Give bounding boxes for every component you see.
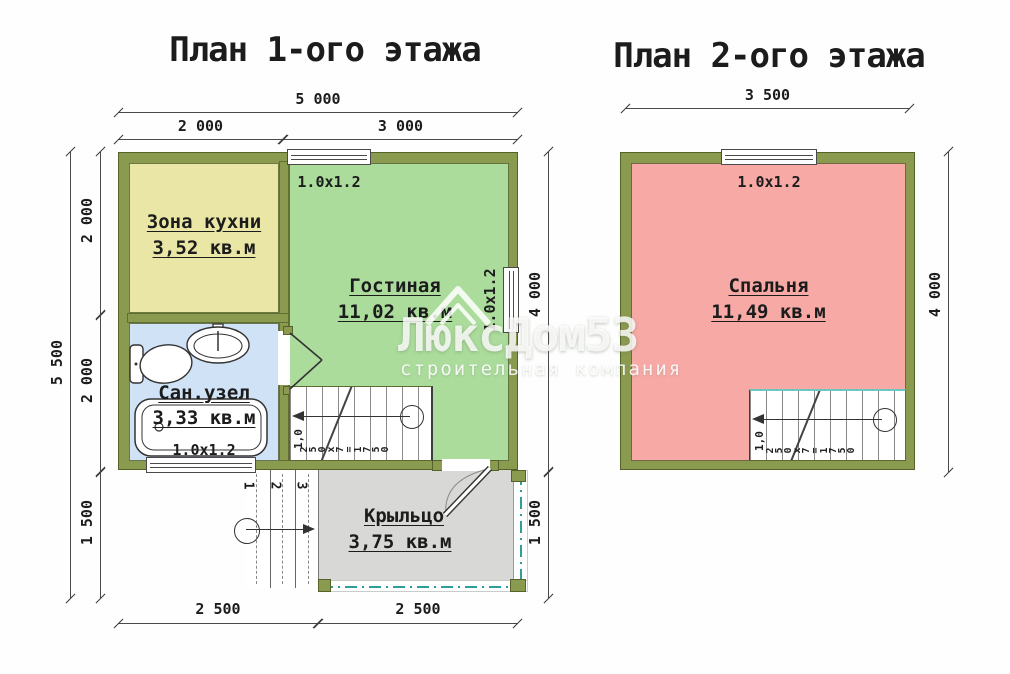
steps-start-circle-icon xyxy=(234,518,260,544)
window-plan1-bath xyxy=(146,457,256,473)
porch-post-top-right xyxy=(511,470,526,482)
bath-door-icon xyxy=(288,330,330,392)
dim-plan1-top-left-line xyxy=(118,139,283,140)
stairs-width-dimension: 1,0 xyxy=(292,417,305,449)
porch-edge-bottom-dash xyxy=(321,586,525,588)
porch-area-label: 3,75 кв.м xyxy=(326,531,474,553)
dim-plan1-left-total-line xyxy=(70,152,71,598)
porch-name-label: Крыльцо xyxy=(330,505,478,527)
bedroom-name-label: Спальня xyxy=(631,275,906,297)
dim-plan1-top-total-line xyxy=(118,112,518,113)
dim-plan1-left-seg2-label: 2 000 xyxy=(78,358,96,403)
dim-plan1-left-total-label: 5 500 xyxy=(48,340,66,385)
watermark-tagline: строительная компания xyxy=(400,358,682,380)
dim-plan1-top-right-line xyxy=(283,139,518,140)
dim-plan1-left-seg3-line xyxy=(100,472,101,598)
dim-plan1-bottom-right-label: 2 500 xyxy=(318,600,518,618)
step-number-1: 1 xyxy=(240,482,255,490)
window-plan1-top xyxy=(287,149,371,165)
floorplan-drawing: План 1-ого этажа План 2-ого этажа 5 000 … xyxy=(0,0,1010,674)
dim-plan2-top-total-line xyxy=(625,108,910,109)
stairs-run-dimension: 250x7=1750 xyxy=(299,444,409,456)
bath-area-label: 3,33 кв.м xyxy=(129,407,279,429)
dim-plan1-left-seg1-line xyxy=(100,152,101,315)
dim-plan1-top-left-label: 2 000 xyxy=(118,117,283,135)
dim-plan1-bottom-left-label: 2 500 xyxy=(118,600,318,618)
dim-plan2-right-total-line xyxy=(948,152,949,472)
porch-post-bottom-left xyxy=(318,579,331,592)
kitchen-name-label: Зона кухни xyxy=(129,211,279,233)
plan2-building: 250x7=1750 1,0 1.0x1.2 Спальня 11,49 кв.… xyxy=(620,152,915,470)
plan2-title: План 2-ого этажа xyxy=(606,36,932,76)
window-plan1-top-label: 1.0x1.2 xyxy=(287,173,371,191)
stairs-direction-line xyxy=(298,416,410,417)
watermark-brand: ЛюксДом53 xyxy=(398,308,638,362)
stairs-plan1: 250x7=1750 1,0 xyxy=(289,386,433,461)
dim-plan1-left-seg2-line xyxy=(100,315,101,472)
dim-plan1-top-total-label: 5 000 xyxy=(118,90,518,108)
porch-edge-bottom xyxy=(318,580,528,592)
step-number-3: 3 xyxy=(293,482,308,490)
dim-plan1-top-right-label: 3 000 xyxy=(283,117,518,135)
kitchen-area-label: 3,52 кв.м xyxy=(129,237,279,259)
window-plan2-top-label: 1.0x1.2 xyxy=(721,173,817,191)
dim-plan2-top-total-label: 3 500 xyxy=(625,86,910,104)
step-number-2: 2 xyxy=(267,482,282,490)
stairs-direction-line xyxy=(758,419,882,420)
porch-edge-right-dash xyxy=(520,473,522,589)
steps-direction-line xyxy=(246,529,308,530)
stairs-width-dimension: 1,0 xyxy=(753,419,766,451)
dim-plan2-right-total-label: 4 000 xyxy=(926,272,944,317)
porch-post-bottom-right xyxy=(510,579,526,592)
dim-plan1-bottom-left-line xyxy=(118,623,318,624)
window-plan2-top xyxy=(721,149,817,165)
dim-plan1-left-seg3-label: 1 500 xyxy=(78,500,96,545)
wall-kitchen-bath xyxy=(127,313,289,323)
dim-plan1-left-seg1-label: 2 000 xyxy=(78,198,96,243)
wall-kitchen-living xyxy=(279,161,289,461)
dim-plan1-right-lower-line xyxy=(548,472,549,598)
stairs-run-dimension: 250x7=1750 xyxy=(765,445,875,457)
stairs-plan2: 250x7=1750 1,0 xyxy=(749,389,906,461)
dim-plan1-bottom-right-line xyxy=(318,623,518,624)
stairs-start-circle-icon xyxy=(400,405,424,429)
bath-name-label: Сан.узел xyxy=(129,382,279,404)
plan1-title: План 1-ого этажа xyxy=(160,30,490,70)
window-plan1-bath-label: 1.0x1.2 xyxy=(129,441,279,459)
steps-direction-arrow-icon xyxy=(303,524,315,534)
toilet-icon xyxy=(138,342,195,387)
dim-plan1-right-lower-label: 1 500 xyxy=(526,500,544,545)
bedroom-area-label: 11,49 кв.м xyxy=(631,301,906,323)
stairs-start-circle-icon xyxy=(873,408,897,432)
